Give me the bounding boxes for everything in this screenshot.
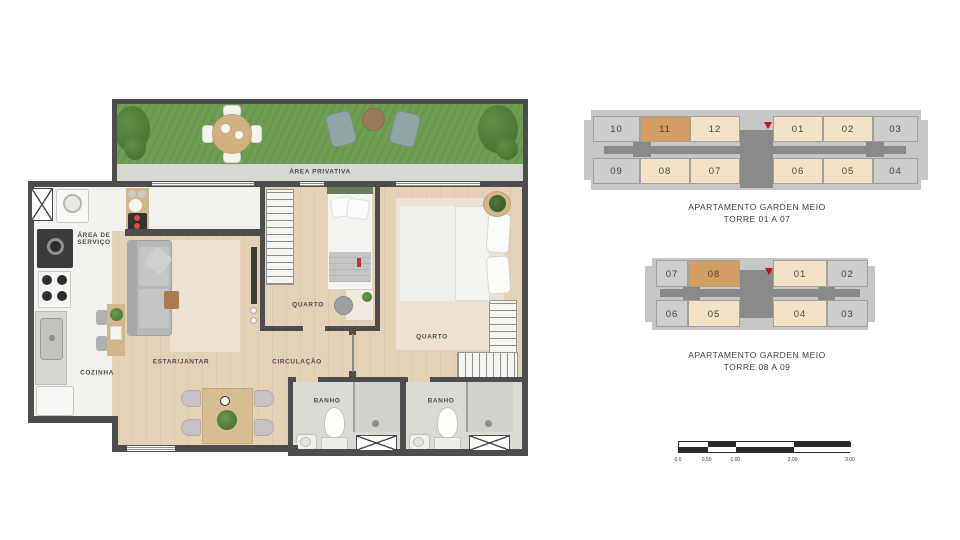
- plate-icon: [138, 190, 146, 198]
- exterior-mask: [28, 423, 112, 456]
- living-label: ESTAR/JANTAR: [153, 359, 209, 366]
- blanket-tag-icon: [357, 258, 361, 267]
- hall-label: CIRCULAÇÃO: [272, 359, 322, 366]
- burner-icon: [57, 291, 67, 301]
- dining-chair: [181, 419, 201, 436]
- unit-cell-08: 08: [640, 158, 690, 184]
- pillow-icon: [486, 255, 512, 295]
- fridge-icon: [36, 386, 74, 416]
- unit-cell-12: 12: [690, 116, 740, 142]
- unit-cell-01: 01: [773, 260, 827, 287]
- duvet: [400, 206, 456, 301]
- washer-door-icon: [63, 194, 82, 213]
- shower-drain-icon: [485, 420, 492, 427]
- wall: [523, 99, 528, 186]
- bowl-icon: [129, 199, 142, 212]
- unit-cell-01: 01: [773, 116, 823, 142]
- scale-bar-label: 0.50: [702, 457, 712, 463]
- bush-icon: [124, 136, 146, 160]
- north-marker-icon: [765, 268, 773, 275]
- vase-icon: [110, 326, 122, 340]
- oven-dial-icon: [47, 238, 64, 255]
- door-leaf: [352, 334, 354, 372]
- stair-block: [866, 141, 884, 157]
- wall: [522, 181, 528, 456]
- basin-icon: [300, 437, 311, 447]
- unit-cell-04: 04: [873, 158, 918, 184]
- wardrobe: [457, 352, 518, 379]
- burner-icon: [42, 275, 52, 285]
- basin-icon: [413, 437, 424, 447]
- wall: [318, 377, 408, 382]
- speaker-icon: [250, 307, 257, 314]
- unit-cell-02: 02: [823, 116, 873, 142]
- burner-icon: [134, 215, 140, 221]
- plate-icon: [128, 190, 136, 198]
- scale-bar-label: 1.00: [730, 457, 740, 463]
- scale-bar-segment: [794, 447, 851, 452]
- unit-cell-09: 09: [593, 158, 640, 184]
- wall: [400, 377, 406, 454]
- stair-block: [683, 287, 700, 301]
- bowl-icon: [220, 396, 230, 406]
- sofa-back: [127, 240, 137, 336]
- scale-bar-label: 2.00: [788, 457, 798, 463]
- building-wing: [645, 266, 653, 322]
- garden-label: ÁREA PRIVATIVA: [289, 169, 351, 176]
- building-wing: [584, 120, 592, 180]
- desk-chair: [334, 296, 353, 315]
- toilet-bowl-icon: [324, 407, 345, 438]
- wall: [28, 416, 118, 423]
- garden-plate: [221, 124, 230, 133]
- shaft-icon: [31, 188, 53, 221]
- scale-bar-label: 0.0: [675, 457, 682, 463]
- bedroom2-label: QUARTO: [416, 334, 448, 341]
- wall: [260, 326, 303, 331]
- dining-chair: [181, 390, 201, 407]
- window: [396, 182, 480, 186]
- scale-bar-segment: [708, 447, 737, 452]
- wardrobe: [489, 300, 517, 354]
- north-marker-icon: [764, 122, 772, 129]
- blanket: [329, 252, 371, 282]
- unit-cell-07: 07: [690, 158, 740, 184]
- dining-chair: [254, 390, 274, 407]
- wall: [375, 187, 380, 331]
- toilet-bowl-icon: [437, 407, 458, 438]
- scale-bar-label: 3.00: [845, 457, 855, 463]
- elevator-core: [740, 270, 773, 318]
- bedroom1-label: QUARTO: [292, 302, 324, 309]
- wall: [125, 229, 260, 236]
- shower-partition: [466, 382, 468, 432]
- unit-cell-04: 04: [773, 300, 827, 327]
- scale-bar-frame: [678, 441, 850, 453]
- unit-cell-08: 08: [688, 260, 740, 287]
- unit-cell-02: 02: [827, 260, 868, 287]
- unit-cell-05: 05: [823, 158, 873, 184]
- unit-cell-03: 03: [827, 300, 868, 327]
- garden-table: [212, 114, 252, 154]
- wall: [288, 377, 293, 454]
- living-rug: [170, 240, 240, 352]
- burner-icon: [42, 291, 52, 301]
- wardrobe: [266, 189, 294, 285]
- wall: [430, 377, 522, 382]
- side-table: [164, 291, 179, 309]
- wall: [260, 187, 265, 331]
- plant-icon: [217, 410, 237, 430]
- keyplan2-caption-line1: APARTAMENTO GARDEN MEIO: [688, 349, 825, 361]
- wall: [112, 99, 117, 186]
- stair-block: [818, 287, 835, 301]
- keyplan1-caption-line1: APARTAMENTO GARDEN MEIO: [688, 201, 825, 213]
- window: [127, 446, 175, 451]
- unit-cell-06: 06: [656, 300, 688, 327]
- elevator-core: [740, 130, 773, 188]
- plant-icon: [362, 292, 372, 302]
- shower-partition: [353, 382, 355, 432]
- burner-icon: [57, 275, 67, 285]
- pillow-icon: [486, 212, 512, 254]
- bush-icon: [496, 138, 518, 160]
- shaft-icon: [469, 435, 510, 451]
- scale-bar-segment: [736, 447, 793, 452]
- unit-cell-06: 06: [773, 158, 823, 184]
- shower-drain-icon: [372, 420, 379, 427]
- kitchen-label: COZINHA: [80, 370, 114, 377]
- bath1-label: BANHO: [314, 398, 341, 405]
- building-wing: [920, 120, 928, 180]
- speaker-icon: [250, 317, 257, 324]
- garden-plate: [235, 131, 243, 139]
- window: [300, 182, 324, 186]
- keyplan2-caption-line2: TORRE 08 A 09: [724, 361, 791, 373]
- keyplan1-caption-line2: TORRE 01 A 07: [724, 213, 791, 225]
- shaft-icon: [356, 435, 397, 451]
- plant-icon: [110, 308, 123, 321]
- building-wing: [867, 266, 875, 322]
- brochure-page: ÁREA PRIVATIVA: [0, 0, 960, 540]
- headboard: [327, 187, 373, 194]
- scale-bar: 0.00.501.002.003.00: [678, 441, 850, 467]
- dining-chair: [254, 419, 274, 436]
- unit-cell-11: 11: [640, 116, 690, 142]
- unit-cell-05: 05: [688, 300, 740, 327]
- tv-panel-icon: [251, 247, 257, 304]
- unit-cell-10: 10: [593, 116, 640, 142]
- bath2-label: BANHO: [428, 398, 455, 405]
- window: [152, 182, 254, 186]
- stair-block: [633, 141, 651, 157]
- unit-cell-07: 07: [656, 260, 688, 287]
- plant-icon: [489, 195, 506, 212]
- unit-cell-03: 03: [873, 116, 918, 142]
- pillow-icon: [346, 198, 370, 221]
- lounge-table: [362, 108, 385, 131]
- faucet-icon: [49, 335, 55, 341]
- service-label: ÁREA DE SERVIÇO: [70, 232, 118, 246]
- scale-bar-segment: [679, 447, 708, 452]
- wall: [112, 99, 528, 104]
